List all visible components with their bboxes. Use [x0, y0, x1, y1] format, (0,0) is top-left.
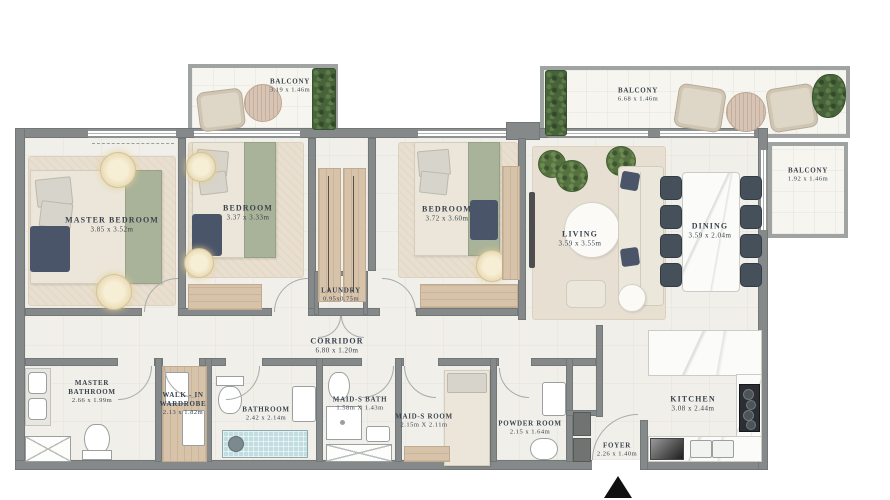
- room-dims: 3.37 x 3.33m: [203, 214, 293, 223]
- room-name: MASTER BEDROOM: [52, 216, 172, 226]
- wall-segment: [25, 308, 142, 316]
- room-dims: 3.85 x 3.52m: [52, 226, 172, 235]
- room-name: POWDER ROOM: [490, 420, 570, 429]
- wall-segment: [199, 358, 226, 366]
- label-balcony-top-left: BALCONY 3.19 x 1.46m: [250, 78, 330, 95]
- wall-segment: [15, 128, 25, 470]
- room-name: MASTER BATHROOM: [60, 379, 124, 397]
- label-bedroom-3: BEDROOM 3.72 x 3.60m: [402, 205, 492, 224]
- window: [88, 129, 176, 138]
- plant-icon: [556, 160, 588, 192]
- pillow: [447, 373, 487, 393]
- wardrobe-rail: [328, 176, 329, 292]
- bed-blanket: [244, 142, 276, 258]
- ceiling-light-icon: [184, 248, 214, 278]
- kitchen-counter: [648, 330, 762, 376]
- wall-segment: [531, 358, 596, 366]
- room-name: CORRIDOR: [287, 337, 387, 347]
- sofa-pillow: [620, 171, 641, 192]
- label-walk-in-wardrobe: WALK - IN WARDROBE 2.13 x 1.82m: [154, 391, 212, 417]
- room-dims: 3.08 x 2.44m: [648, 405, 738, 414]
- room-dims: 3.72 x 3.60m: [402, 215, 492, 224]
- wardrobe: [188, 284, 262, 310]
- side-table: [618, 284, 646, 312]
- label-dining: DINING 3.59 x 2.04m: [670, 222, 750, 241]
- sofa-cushion-line: [640, 172, 641, 298]
- balcony-table: [726, 92, 766, 132]
- toilet-icon: [530, 438, 558, 460]
- room-name: BALCONY: [250, 78, 330, 87]
- sink-icon: [28, 398, 47, 420]
- room-dims: 0.95x0.75m: [311, 295, 371, 303]
- label-maids-room: MAID-S ROOM 2.15m X 2.11m: [384, 413, 464, 430]
- wall-segment: [416, 308, 518, 316]
- room-dims: 2.15 x 1.64m: [490, 428, 570, 436]
- room-dims: 1.58m X 1.43m: [320, 404, 400, 412]
- hedge-plant: [545, 70, 567, 136]
- room-dims: 3.19 x 1.46m: [250, 86, 330, 94]
- room-name: BATHROOM: [226, 406, 306, 415]
- tv-icon: [529, 192, 535, 268]
- hedge-plant: [812, 74, 846, 118]
- ceiling-light-icon: [100, 152, 136, 188]
- label-balcony-top-right: BALCONY 6.68 x 1.46m: [598, 87, 678, 104]
- sofa-pillow: [620, 247, 640, 267]
- dining-chair: [660, 176, 682, 200]
- floor-plan: MASTER BEDROOM 3.85 x 3.52m BEDROOM 3.37…: [0, 0, 890, 500]
- closet: [326, 444, 392, 462]
- wardrobe: [420, 284, 518, 308]
- balcony-right: [768, 142, 848, 238]
- hob-icon: [739, 384, 760, 432]
- balcony-chair: [196, 87, 247, 132]
- dresser: [404, 446, 450, 462]
- balcony-chair: [673, 83, 727, 134]
- label-bathroom: BATHROOM 2.42 x 2.14m: [226, 406, 306, 423]
- window: [418, 129, 506, 138]
- room-dims: 3.59 x 3.55m: [540, 240, 620, 249]
- room-name: KITCHEN: [648, 395, 738, 405]
- entrance-opening: [592, 460, 640, 470]
- dining-chair: [740, 176, 762, 200]
- room-name: MAID-S ROOM: [384, 413, 464, 422]
- wall-segment: [178, 138, 186, 316]
- kitchen-sink-icon: [712, 440, 734, 458]
- room-name: LAUNDRY: [311, 287, 371, 296]
- label-master-bedroom: MASTER BEDROOM 3.85 x 3.52m: [52, 216, 172, 235]
- label-living: LIVING 3.59 x 3.55m: [540, 230, 620, 249]
- label-corridor: CORRIDOR 6.80 x 1.20m: [287, 337, 387, 356]
- pillow: [419, 171, 449, 196]
- label-kitchen: KITCHEN 3.08 x 2.44m: [648, 395, 738, 414]
- room-dims: 1.92 x 1.46m: [770, 175, 846, 183]
- sink-icon: [28, 372, 47, 394]
- label-foyer: FOYER 2.26 x 1.40m: [582, 442, 652, 459]
- label-bedroom-2: BEDROOM 3.37 x 3.33m: [203, 204, 293, 223]
- room-name: MAID-S BATH: [320, 396, 400, 405]
- shower-drain-icon: [340, 420, 345, 425]
- curtain-symbol: [92, 140, 174, 144]
- wall-segment: [262, 358, 362, 366]
- room-dims: 6.68 x 1.46m: [598, 95, 678, 103]
- shower: [25, 436, 71, 462]
- dining-chair: [660, 263, 682, 287]
- label-master-bathroom: MASTER BATHROOM 2.66 x 1.99m: [60, 379, 124, 405]
- wall-segment: [368, 138, 376, 271]
- wall-segment: [596, 325, 603, 417]
- room-name: FOYER: [582, 442, 652, 451]
- kitchen-sink-icon: [690, 440, 712, 458]
- room-name: BALCONY: [770, 167, 846, 176]
- wall-segment: [25, 358, 118, 366]
- ceiling-light-icon: [96, 274, 132, 310]
- room-dims: 2.15m X 2.11m: [384, 421, 464, 429]
- room-dims: 6.80 x 1.20m: [287, 347, 387, 356]
- ottoman: [566, 280, 606, 308]
- label-laundry: LAUNDRY 0.95x0.75m: [311, 287, 371, 304]
- label-maids-bath: MAID-S BATH 1.58m X 1.43m: [320, 396, 400, 413]
- bathtub-drain-icon: [228, 436, 244, 452]
- balcony-chair: [765, 83, 819, 134]
- room-name: BEDROOM: [203, 204, 293, 214]
- wardrobe-rail: [353, 176, 354, 292]
- service-shaft: [573, 412, 591, 436]
- room-name: LIVING: [540, 230, 620, 240]
- room-dims: 2.13 x 1.82m: [154, 409, 212, 417]
- ceiling-light-icon: [186, 152, 216, 182]
- room-dims: 2.26 x 1.40m: [582, 450, 652, 458]
- room-dims: 2.66 x 1.99m: [60, 397, 124, 405]
- room-dims: 2.42 x 2.14m: [226, 414, 306, 422]
- sink-icon: [542, 382, 566, 416]
- wardrobe: [343, 168, 366, 302]
- wardrobe: [502, 166, 520, 280]
- oven-icon: [650, 438, 684, 460]
- wall-segment: [490, 358, 497, 462]
- toilet-tank: [82, 450, 112, 460]
- room-dims: 3.59 x 2.04m: [670, 232, 750, 241]
- room-name: BEDROOM: [402, 205, 492, 215]
- label-balcony-right: BALCONY 1.92 x 1.46m: [770, 167, 846, 184]
- wardrobe: [318, 168, 341, 302]
- label-powder-room: POWDER ROOM 2.15 x 1.64m: [490, 420, 570, 437]
- room-name: WALK - IN WARDROBE: [154, 391, 212, 409]
- room-name: DINING: [670, 222, 750, 232]
- dining-chair: [740, 263, 762, 287]
- entrance-arrow-icon: [604, 476, 632, 498]
- room-name: BALCONY: [598, 87, 678, 96]
